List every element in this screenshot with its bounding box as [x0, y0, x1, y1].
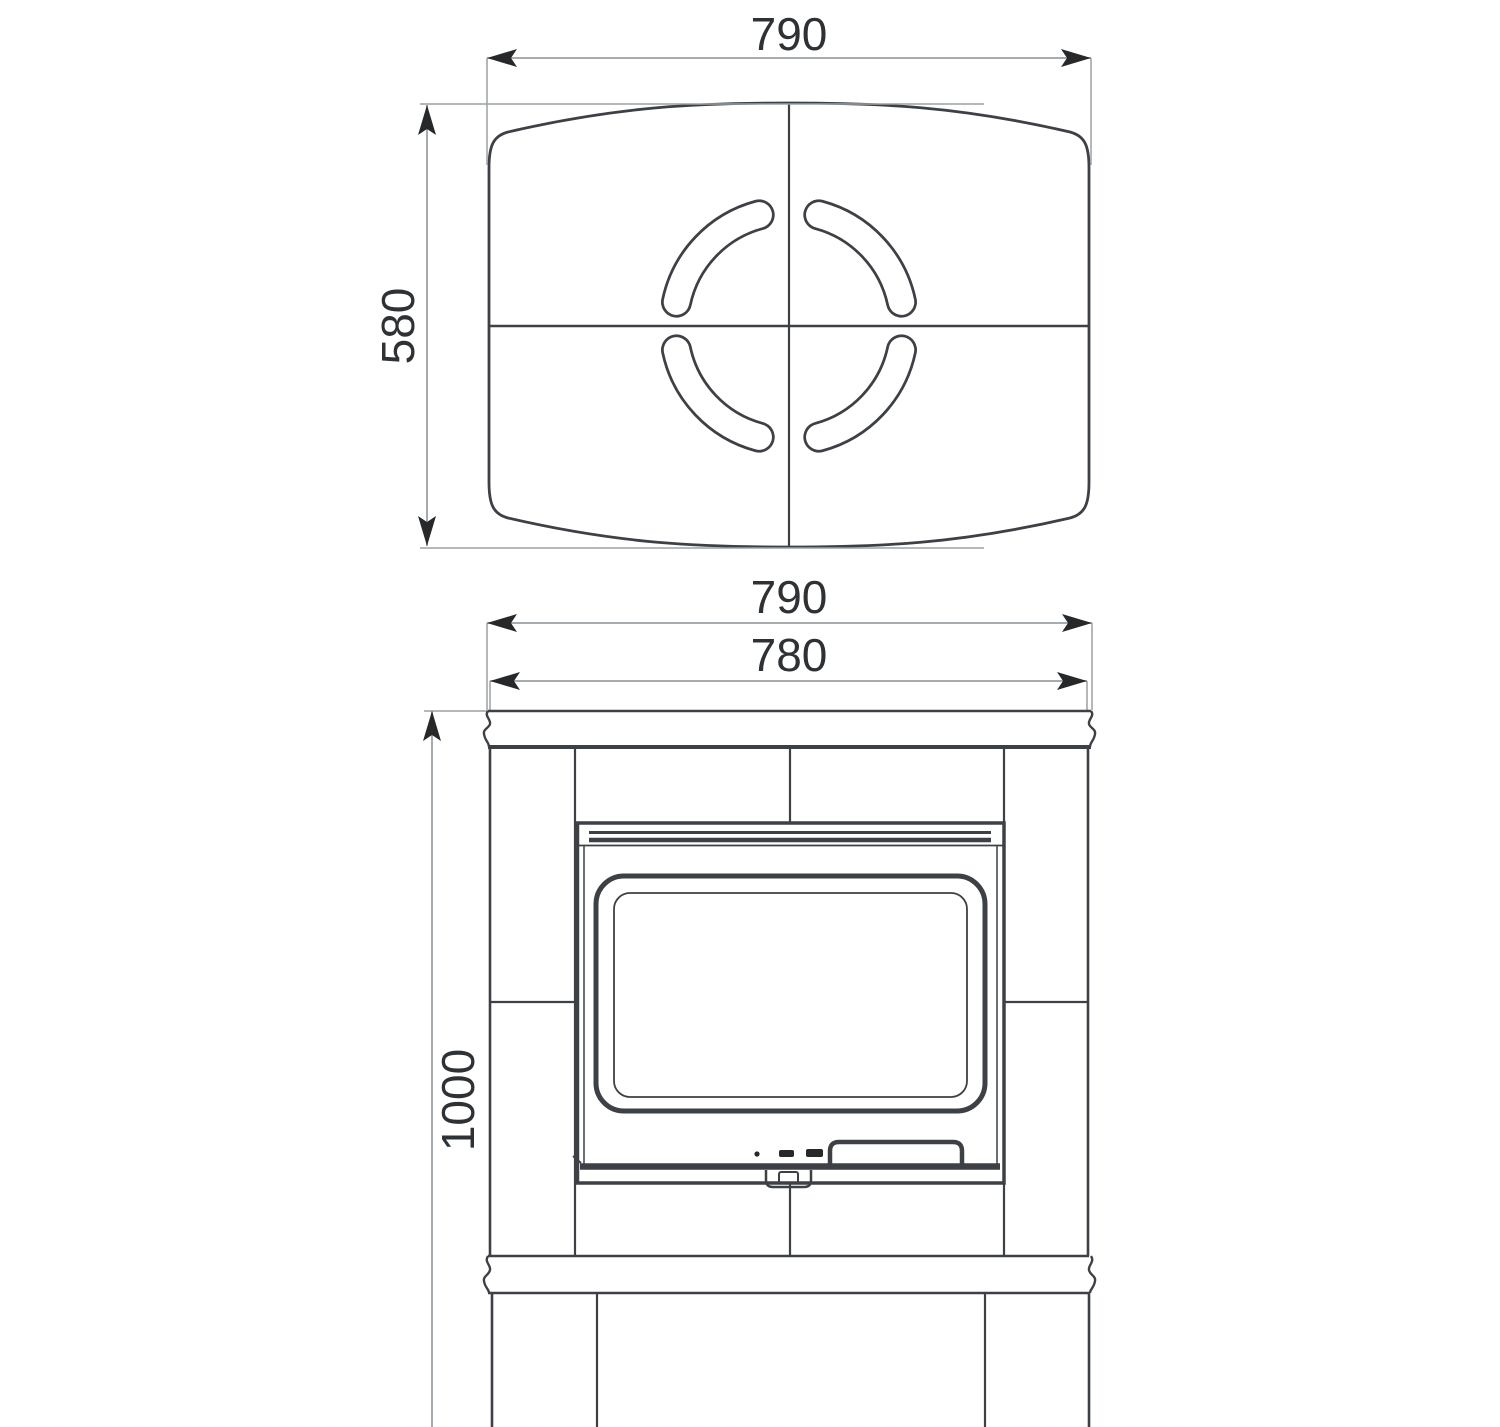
- vent-slot-lower-left: [677, 350, 760, 437]
- dim-label-top-width: 790: [751, 8, 828, 60]
- glass-window-outer: [596, 876, 985, 1111]
- plinth-right-moulding: [1089, 1256, 1095, 1293]
- dim-label-depth: 580: [372, 288, 424, 365]
- dim-body-width: 780: [490, 629, 1087, 710]
- top-plate-left-moulding: [484, 711, 490, 747]
- vent-slot-upper-right: [819, 215, 902, 302]
- door-mark-dash-2: [806, 1149, 823, 1157]
- dim-label-height: 1000: [432, 1049, 484, 1151]
- door-mark-dash-1: [779, 1150, 794, 1157]
- vent-slot-upper-left: [677, 215, 760, 302]
- dim-label-body-width: 780: [751, 629, 828, 681]
- vent-slot-lower-right: [819, 350, 902, 437]
- technical-drawing: 790 580 790 780: [0, 0, 1500, 1427]
- dim-label-overall-width: 790: [751, 571, 828, 623]
- pedestal-base: [492, 1293, 1089, 1427]
- plinth-left-moulding: [484, 1256, 490, 1293]
- front-view: 790 780 1000: [423, 571, 1095, 1427]
- glass-window-inner: [614, 893, 967, 1097]
- top-plate: [484, 711, 1095, 747]
- dim-height: 1000: [423, 711, 490, 1427]
- base-plinth: [484, 1256, 1095, 1293]
- fire-door: [573, 823, 1004, 1187]
- top-view: 790 580: [372, 8, 1091, 548]
- top-plate-right-moulding: [1089, 711, 1095, 747]
- door-mark-dot: [754, 1151, 759, 1156]
